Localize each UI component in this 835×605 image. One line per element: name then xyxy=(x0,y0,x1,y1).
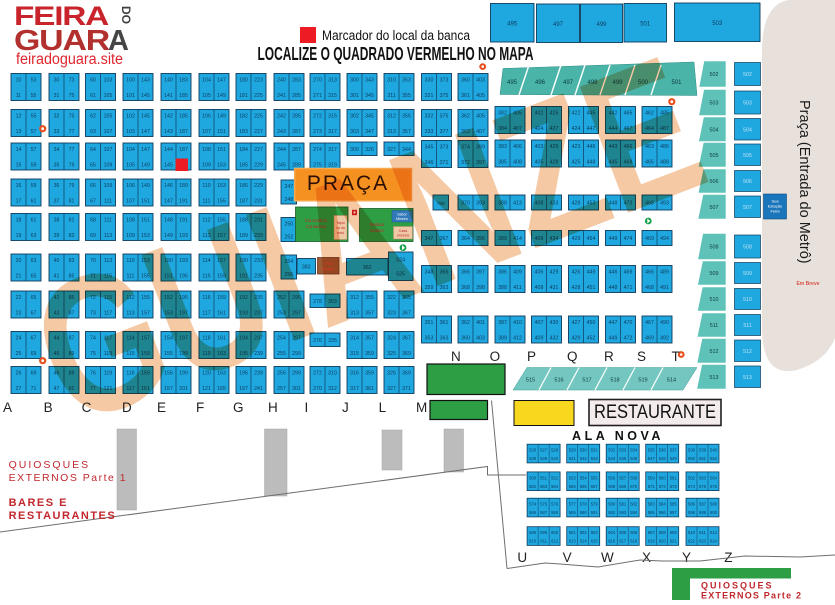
svg-text:489: 489 xyxy=(660,270,669,276)
svg-text:549: 549 xyxy=(670,456,678,461)
svg-text:511: 511 xyxy=(743,323,751,329)
svg-text:537: 537 xyxy=(670,448,678,453)
svg-text:620: 620 xyxy=(659,539,667,544)
svg-text:151: 151 xyxy=(217,147,226,153)
svg-text:593: 593 xyxy=(619,510,627,515)
svg-text:502: 502 xyxy=(710,72,719,78)
svg-text:566: 566 xyxy=(580,484,588,489)
svg-text:551: 551 xyxy=(540,475,548,480)
svg-text:542: 542 xyxy=(580,456,588,461)
svg-text:271: 271 xyxy=(313,93,322,99)
svg-text:530: 530 xyxy=(580,448,588,453)
svg-text:472: 472 xyxy=(624,336,633,342)
svg-text:536: 536 xyxy=(659,448,667,453)
svg-text:301: 301 xyxy=(292,386,301,392)
svg-text:227: 227 xyxy=(254,147,263,153)
svg-text:145: 145 xyxy=(141,114,150,120)
svg-text:272: 272 xyxy=(313,114,322,120)
svg-text:585: 585 xyxy=(670,502,678,507)
svg-text:491: 491 xyxy=(660,285,669,291)
svg-text:15: 15 xyxy=(16,163,22,169)
svg-text:66: 66 xyxy=(90,183,96,189)
svg-text:187: 187 xyxy=(179,147,188,153)
svg-text:59: 59 xyxy=(31,183,37,189)
svg-text:359: 359 xyxy=(365,371,374,377)
svg-text:A: A xyxy=(3,400,12,415)
svg-text:557: 557 xyxy=(619,475,627,480)
svg-text:562: 562 xyxy=(529,484,537,489)
svg-text:621: 621 xyxy=(670,539,678,544)
svg-text:576: 576 xyxy=(710,484,718,489)
svg-text:330: 330 xyxy=(425,78,434,84)
svg-text:546: 546 xyxy=(630,456,638,461)
svg-text:514: 514 xyxy=(667,378,676,384)
svg-text:312: 312 xyxy=(328,386,337,392)
svg-text:L: L xyxy=(379,400,387,415)
svg-text:504: 504 xyxy=(743,127,752,133)
svg-text:513: 513 xyxy=(743,375,752,381)
svg-text:310: 310 xyxy=(387,78,396,84)
svg-text:360: 360 xyxy=(461,336,470,342)
svg-text:584: 584 xyxy=(659,502,667,507)
svg-text:539: 539 xyxy=(699,448,707,453)
svg-text:77: 77 xyxy=(69,147,75,153)
svg-text:103: 103 xyxy=(126,129,135,135)
svg-text:510: 510 xyxy=(743,297,752,303)
svg-text:499: 499 xyxy=(596,22,607,28)
svg-text:616: 616 xyxy=(608,539,616,544)
svg-text:587: 587 xyxy=(540,510,548,515)
svg-text:407: 407 xyxy=(535,320,544,326)
svg-text:107: 107 xyxy=(104,147,113,153)
svg-text:559: 559 xyxy=(648,475,656,480)
svg-text:I: I xyxy=(305,400,309,415)
svg-text:79: 79 xyxy=(69,183,75,189)
svg-text:63: 63 xyxy=(31,233,37,239)
svg-text:617: 617 xyxy=(619,539,627,544)
svg-text:513: 513 xyxy=(710,375,719,381)
svg-text:588: 588 xyxy=(710,502,718,507)
svg-text:33: 33 xyxy=(54,129,60,135)
svg-text:315: 315 xyxy=(328,93,337,99)
svg-text:586: 586 xyxy=(688,502,696,507)
svg-text:69: 69 xyxy=(31,371,37,377)
svg-text:73: 73 xyxy=(69,78,75,84)
svg-text:613: 613 xyxy=(569,539,577,544)
svg-text:32: 32 xyxy=(54,114,60,120)
svg-text:69: 69 xyxy=(31,351,37,357)
svg-text:470: 470 xyxy=(624,320,633,326)
svg-text:555: 555 xyxy=(591,475,599,480)
svg-text:287: 287 xyxy=(292,129,301,135)
svg-text:14: 14 xyxy=(16,147,22,153)
svg-text:539: 539 xyxy=(540,456,548,461)
svg-text:578: 578 xyxy=(580,502,588,507)
svg-text:Marcador do local da banca: Marcador do local da banca xyxy=(322,28,470,43)
svg-text:581: 581 xyxy=(619,502,627,507)
svg-text:409: 409 xyxy=(535,336,544,342)
svg-text:27: 27 xyxy=(16,386,22,392)
svg-text:429: 429 xyxy=(572,336,581,342)
svg-text:25: 25 xyxy=(16,351,22,357)
svg-text:183: 183 xyxy=(239,129,248,135)
svg-text:512: 512 xyxy=(710,349,719,355)
svg-text:553: 553 xyxy=(569,475,577,480)
svg-text:538: 538 xyxy=(529,456,537,461)
svg-text:147: 147 xyxy=(217,78,226,84)
svg-text:QUIOSQUES: QUIOSQUES xyxy=(701,581,774,591)
svg-text:143: 143 xyxy=(164,129,173,135)
svg-text:527: 527 xyxy=(540,448,548,453)
svg-text:61: 61 xyxy=(31,199,37,205)
svg-text:623: 623 xyxy=(699,539,707,544)
svg-text:270: 270 xyxy=(313,386,322,392)
svg-text:565: 565 xyxy=(569,484,577,489)
svg-text:P: P xyxy=(527,349,536,364)
svg-text:104: 104 xyxy=(126,147,135,153)
svg-text:55: 55 xyxy=(31,93,37,99)
svg-text:81: 81 xyxy=(69,218,75,224)
svg-text:T: T xyxy=(672,349,680,364)
svg-text:24: 24 xyxy=(16,336,22,342)
svg-text:149: 149 xyxy=(217,93,226,99)
svg-text:622: 622 xyxy=(688,539,696,544)
svg-text:502: 502 xyxy=(743,72,752,78)
svg-text:62: 62 xyxy=(90,114,96,120)
svg-text:285: 285 xyxy=(292,114,301,120)
svg-text:490: 490 xyxy=(660,320,669,326)
svg-text:109: 109 xyxy=(202,163,211,169)
svg-text:608: 608 xyxy=(659,530,667,535)
svg-text:68: 68 xyxy=(90,218,96,224)
svg-text:556: 556 xyxy=(608,475,616,480)
svg-text:31: 31 xyxy=(54,93,60,99)
svg-text:583: 583 xyxy=(648,502,656,507)
svg-text:547: 547 xyxy=(648,456,656,461)
svg-text:240: 240 xyxy=(277,78,286,84)
svg-text:569: 569 xyxy=(619,484,627,489)
svg-text:403: 403 xyxy=(476,336,485,342)
svg-text:327: 327 xyxy=(387,386,396,392)
svg-text:302: 302 xyxy=(350,114,359,120)
svg-text:611: 611 xyxy=(699,530,706,535)
svg-text:588: 588 xyxy=(551,510,559,515)
svg-text:595: 595 xyxy=(648,510,656,515)
svg-text:26: 26 xyxy=(16,371,22,377)
svg-text:554: 554 xyxy=(580,475,588,480)
svg-text:360: 360 xyxy=(461,78,470,84)
svg-text:R: R xyxy=(604,349,614,364)
svg-text:591: 591 xyxy=(591,510,599,515)
svg-text:81: 81 xyxy=(69,199,75,205)
svg-text:571: 571 xyxy=(648,484,656,489)
svg-text:345: 345 xyxy=(365,93,374,99)
svg-text:540: 540 xyxy=(710,448,718,453)
svg-text:223: 223 xyxy=(254,78,263,84)
svg-text:60: 60 xyxy=(90,78,96,84)
svg-text:Q: Q xyxy=(567,349,578,364)
svg-text:145: 145 xyxy=(141,93,150,99)
svg-text:S: S xyxy=(637,349,646,364)
svg-text:492: 492 xyxy=(660,336,669,342)
svg-text:594: 594 xyxy=(630,510,638,515)
svg-text:283: 283 xyxy=(292,78,301,84)
svg-text:563: 563 xyxy=(699,475,707,480)
svg-text:105: 105 xyxy=(202,93,211,99)
svg-text:450: 450 xyxy=(587,320,596,326)
svg-text:528: 528 xyxy=(551,448,559,453)
svg-text:510: 510 xyxy=(710,297,719,303)
svg-text:30: 30 xyxy=(54,78,60,84)
svg-text:574: 574 xyxy=(529,502,537,507)
svg-text:446: 446 xyxy=(609,270,618,276)
svg-text:105: 105 xyxy=(104,114,113,120)
svg-text:589: 589 xyxy=(569,510,577,515)
svg-text:184: 184 xyxy=(239,147,248,153)
svg-text:57: 57 xyxy=(31,147,37,153)
svg-text:430: 430 xyxy=(550,320,559,326)
svg-text:538: 538 xyxy=(688,448,696,453)
svg-text:79: 79 xyxy=(69,163,75,169)
svg-text:503: 503 xyxy=(743,101,752,107)
svg-text:369: 369 xyxy=(402,371,411,377)
svg-text:149: 149 xyxy=(141,163,150,169)
svg-text:507: 507 xyxy=(743,205,752,211)
svg-text:544: 544 xyxy=(608,456,616,461)
svg-text:37: 37 xyxy=(54,199,60,205)
svg-text:401: 401 xyxy=(476,320,485,326)
svg-text:612: 612 xyxy=(710,530,718,535)
svg-text:311: 311 xyxy=(387,93,395,99)
svg-text:144: 144 xyxy=(164,147,173,153)
svg-text:518: 518 xyxy=(610,378,619,384)
svg-text:596: 596 xyxy=(659,510,667,515)
svg-text:Praça (Entrada do Metrô): Praça (Entrada do Metrô) xyxy=(796,100,812,264)
svg-text:39: 39 xyxy=(54,233,60,239)
svg-text:512: 512 xyxy=(743,349,752,355)
svg-text:108: 108 xyxy=(202,147,211,153)
svg-text:615: 615 xyxy=(591,539,599,544)
svg-text:427: 427 xyxy=(572,320,581,326)
svg-text:519: 519 xyxy=(638,378,647,384)
svg-text:313: 313 xyxy=(328,78,337,84)
svg-text:67: 67 xyxy=(90,199,96,205)
svg-text:548: 548 xyxy=(659,456,667,461)
svg-text:145: 145 xyxy=(164,163,173,169)
svg-text:185: 185 xyxy=(179,93,188,99)
svg-text:599: 599 xyxy=(540,530,548,535)
svg-text:317: 317 xyxy=(328,129,337,135)
svg-text:580: 580 xyxy=(608,502,616,507)
svg-text:H: H xyxy=(268,400,278,415)
svg-text:602: 602 xyxy=(580,530,588,535)
svg-text:452: 452 xyxy=(587,336,596,342)
svg-text:36: 36 xyxy=(54,183,60,189)
svg-text:570: 570 xyxy=(630,484,638,489)
svg-text:467: 467 xyxy=(645,320,654,326)
svg-text:564: 564 xyxy=(551,484,559,489)
svg-text:345: 345 xyxy=(365,114,374,120)
svg-text:598: 598 xyxy=(529,530,537,535)
svg-text:609: 609 xyxy=(670,530,678,535)
svg-text:23: 23 xyxy=(16,311,22,317)
svg-text:241: 241 xyxy=(277,93,286,99)
svg-text:389: 389 xyxy=(498,336,507,342)
svg-text:EXTERNOS Parte 1: EXTERNOS Parte 1 xyxy=(9,472,128,484)
svg-text:533: 533 xyxy=(619,448,627,453)
svg-text:468: 468 xyxy=(645,285,654,291)
svg-text:552: 552 xyxy=(710,456,718,461)
svg-text:343: 343 xyxy=(365,78,374,84)
svg-text:551: 551 xyxy=(699,456,707,461)
svg-text:574: 574 xyxy=(688,484,696,489)
svg-text:300: 300 xyxy=(350,78,359,84)
svg-text:448: 448 xyxy=(609,285,618,291)
svg-text:471: 471 xyxy=(624,285,633,291)
svg-text:M: M xyxy=(416,400,427,415)
svg-text:151: 151 xyxy=(217,129,226,135)
svg-text:13: 13 xyxy=(16,129,22,135)
svg-text:147: 147 xyxy=(141,147,150,153)
svg-text:526: 526 xyxy=(529,448,537,453)
svg-text:55: 55 xyxy=(31,114,37,120)
svg-text:564: 564 xyxy=(710,475,718,480)
svg-text:508: 508 xyxy=(743,245,752,251)
svg-text:618: 618 xyxy=(630,539,638,544)
svg-text:550: 550 xyxy=(529,475,537,480)
svg-text:576: 576 xyxy=(551,502,559,507)
svg-text:243: 243 xyxy=(277,129,286,135)
svg-text:447: 447 xyxy=(609,320,618,326)
svg-text:624: 624 xyxy=(710,539,718,544)
svg-text:100: 100 xyxy=(126,78,135,84)
svg-text:371: 371 xyxy=(402,386,411,392)
svg-text:57: 57 xyxy=(31,129,37,135)
svg-text:BARES E: BARES E xyxy=(9,497,68,509)
svg-text:509: 509 xyxy=(710,271,719,277)
svg-text:586: 586 xyxy=(529,510,537,515)
svg-text:503: 503 xyxy=(712,21,723,27)
svg-text:315: 315 xyxy=(328,114,337,120)
svg-text:61: 61 xyxy=(31,218,37,224)
svg-text:149: 149 xyxy=(217,114,226,120)
svg-text:600: 600 xyxy=(710,510,718,515)
svg-text:RESTAURANTE: RESTAURANTE xyxy=(594,402,716,423)
svg-text:106: 106 xyxy=(202,114,211,120)
svg-text:563: 563 xyxy=(540,484,548,489)
svg-text:105: 105 xyxy=(126,163,135,169)
svg-text:75: 75 xyxy=(69,114,75,120)
svg-text:587: 587 xyxy=(699,502,707,507)
svg-text:534: 534 xyxy=(630,448,638,453)
svg-text:244: 244 xyxy=(277,147,286,153)
svg-text:34: 34 xyxy=(54,147,60,153)
svg-text:10: 10 xyxy=(16,78,22,84)
svg-text:432: 432 xyxy=(550,336,559,342)
svg-text:63: 63 xyxy=(90,129,96,135)
svg-text:225: 225 xyxy=(254,93,263,99)
svg-text:573: 573 xyxy=(670,484,678,489)
svg-text:Feira: Feira xyxy=(770,209,780,214)
svg-text:532: 532 xyxy=(608,448,616,453)
svg-text:601: 601 xyxy=(569,530,577,535)
svg-text:140: 140 xyxy=(164,78,173,84)
svg-text:611: 611 xyxy=(540,539,547,544)
svg-text:109: 109 xyxy=(104,183,113,189)
svg-text:597: 597 xyxy=(670,510,678,515)
svg-text:541: 541 xyxy=(569,456,577,461)
svg-text:19: 19 xyxy=(16,233,22,239)
svg-text:17: 17 xyxy=(16,199,22,205)
svg-text:558: 558 xyxy=(630,475,638,480)
svg-text:497: 497 xyxy=(553,22,564,28)
svg-text:142: 142 xyxy=(164,114,173,120)
svg-text:227: 227 xyxy=(254,129,263,135)
svg-text:603: 603 xyxy=(591,530,599,535)
svg-text:59: 59 xyxy=(31,163,37,169)
svg-text:560: 560 xyxy=(659,475,667,480)
svg-text:104: 104 xyxy=(202,78,211,84)
svg-text:531: 531 xyxy=(591,448,599,453)
svg-text:53: 53 xyxy=(31,78,37,84)
svg-text:619: 619 xyxy=(648,539,656,544)
svg-text:107: 107 xyxy=(126,199,135,205)
svg-text:61: 61 xyxy=(90,93,96,99)
svg-text:515: 515 xyxy=(526,378,535,384)
svg-text:517: 517 xyxy=(582,378,591,384)
svg-text:606: 606 xyxy=(630,530,638,535)
svg-text:598: 598 xyxy=(688,510,696,515)
svg-text:EXTERNOS Parte 2: EXTERNOS Parte 2 xyxy=(701,591,802,601)
svg-text:ALA NOVA: ALA NOVA xyxy=(572,429,664,443)
svg-text:146: 146 xyxy=(164,183,173,189)
svg-text:506: 506 xyxy=(743,179,752,185)
svg-text:325: 325 xyxy=(387,351,396,357)
svg-text:103: 103 xyxy=(104,78,113,84)
svg-text:355: 355 xyxy=(402,93,411,99)
svg-text:552: 552 xyxy=(551,475,559,480)
svg-text:38: 38 xyxy=(54,218,60,224)
svg-text:B: B xyxy=(44,400,53,415)
svg-text:11: 11 xyxy=(16,93,21,99)
svg-text:273: 273 xyxy=(313,129,322,135)
svg-text:369: 369 xyxy=(402,351,411,357)
svg-text:107: 107 xyxy=(202,129,211,135)
svg-text:469: 469 xyxy=(645,336,654,342)
svg-text:579: 579 xyxy=(591,502,599,507)
svg-text:35: 35 xyxy=(54,163,60,169)
svg-text:153: 153 xyxy=(217,163,226,169)
svg-text:567: 567 xyxy=(591,484,599,489)
svg-text:O: O xyxy=(490,349,501,364)
svg-text:561: 561 xyxy=(670,475,678,480)
svg-text:185: 185 xyxy=(239,163,248,169)
svg-text:361: 361 xyxy=(365,386,374,392)
svg-text:610: 610 xyxy=(529,539,537,544)
svg-text:77: 77 xyxy=(69,129,75,135)
svg-text:U: U xyxy=(517,550,527,565)
svg-text:575: 575 xyxy=(540,502,548,507)
svg-text:75: 75 xyxy=(69,93,75,99)
svg-text:509: 509 xyxy=(743,271,752,277)
svg-text:DO: DO xyxy=(119,6,133,24)
svg-text:412: 412 xyxy=(513,336,522,342)
svg-text:577: 577 xyxy=(569,502,577,507)
svg-text:535: 535 xyxy=(648,448,656,453)
svg-text:428: 428 xyxy=(572,285,581,291)
svg-text:529: 529 xyxy=(569,448,577,453)
svg-text:102: 102 xyxy=(126,114,135,120)
